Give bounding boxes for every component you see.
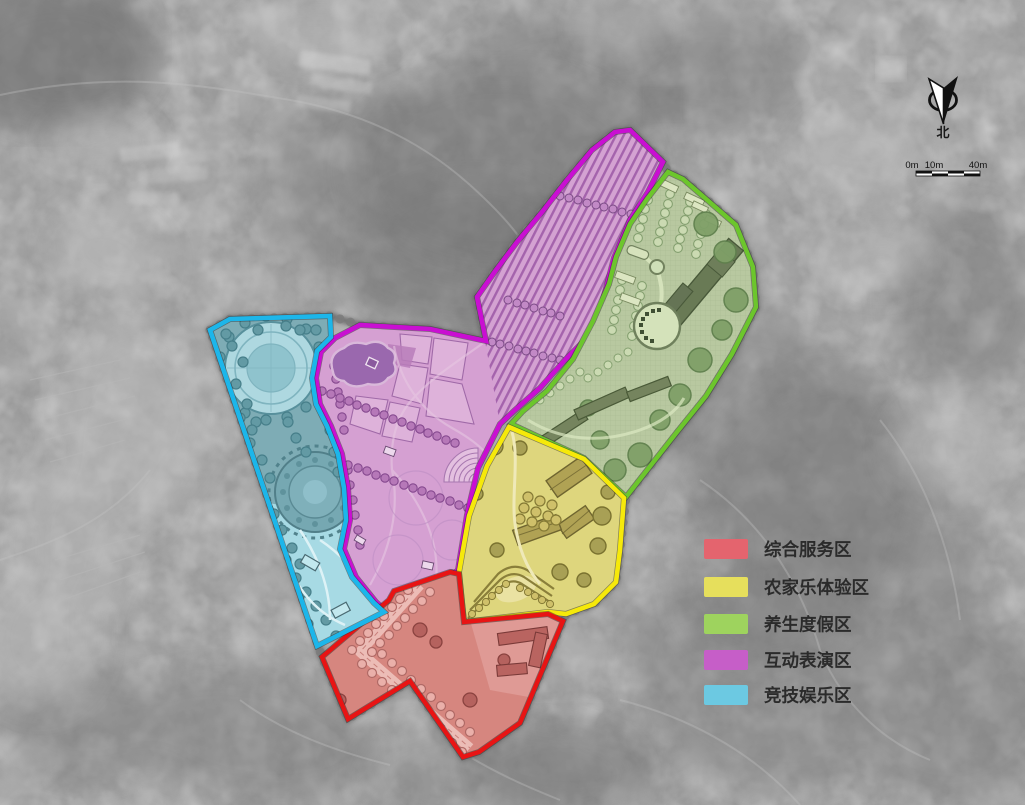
svg-text:10m: 10m [925,160,944,171]
svg-text:40m: 40m [969,160,988,171]
svg-text:北: 北 [936,125,949,140]
svg-text:农家乐体验区: 农家乐体验区 [763,578,869,598]
svg-text:养生度假区: 养生度假区 [763,615,852,635]
svg-text:综合服务区: 综合服务区 [764,540,852,560]
svg-text:互动表演区: 互动表演区 [764,651,852,671]
svg-text:0m: 0m [905,160,918,171]
svg-text:竞技娱乐区: 竞技娱乐区 [764,686,852,706]
